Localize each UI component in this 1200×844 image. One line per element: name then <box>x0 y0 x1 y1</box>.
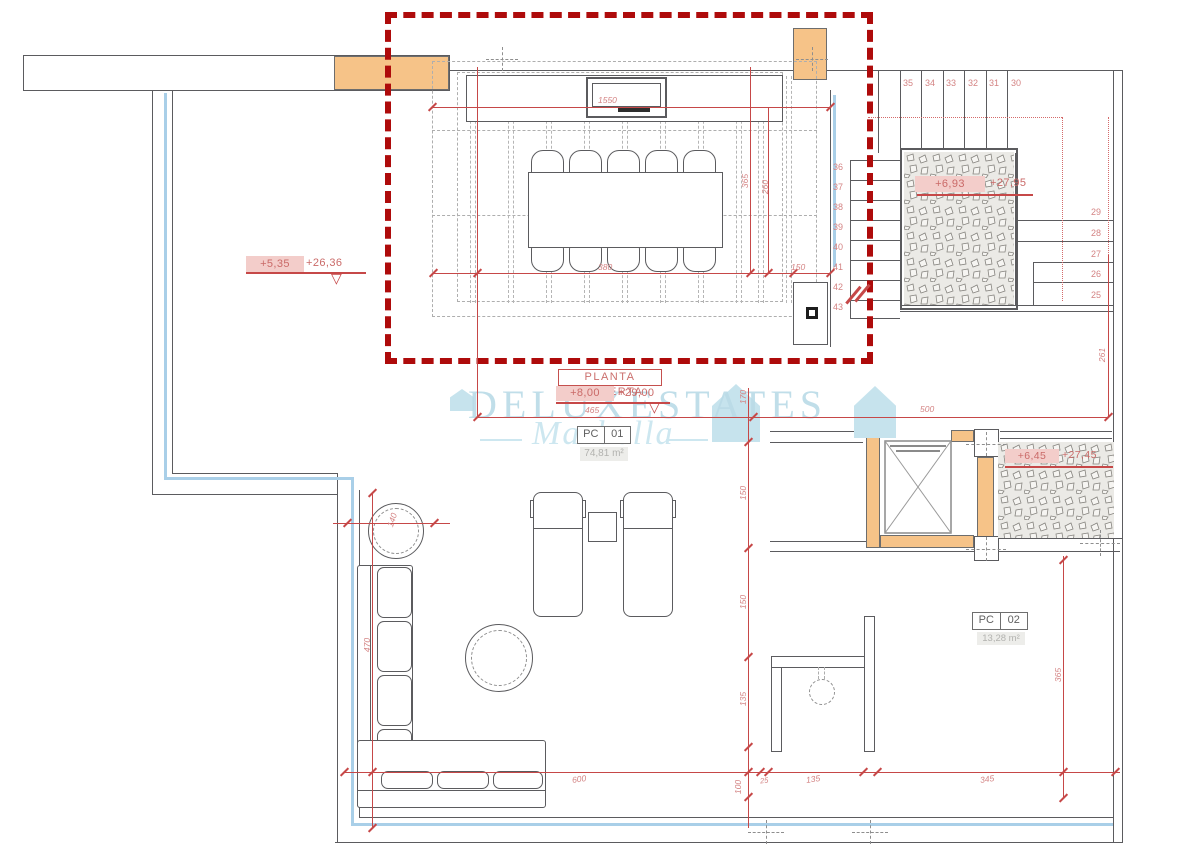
stair-number: 37 <box>830 182 846 192</box>
level-label: +5,35 <box>246 256 304 272</box>
wall-line <box>770 431 863 432</box>
centerline-mark <box>966 537 1006 561</box>
room-number: 02 <box>1000 613 1028 629</box>
wall-line <box>770 442 863 443</box>
centerline-mark <box>966 432 1006 456</box>
sink-circle <box>809 679 835 705</box>
wall-line <box>335 842 1123 843</box>
wall-line <box>900 311 1113 312</box>
wall-line <box>152 494 337 495</box>
lounger-handle <box>530 500 534 518</box>
dim-label: 150 <box>738 486 748 500</box>
counter-wall <box>864 616 875 752</box>
stair-number: 31 <box>984 78 1004 88</box>
wall-line <box>1122 70 1123 843</box>
dim-label: 1550 <box>598 95 617 105</box>
round-table-inner <box>471 630 527 686</box>
dim-label: 150 <box>738 595 748 609</box>
level-marker-icon: ▽ <box>649 401 660 413</box>
dim-line-dotted <box>1108 117 1109 255</box>
dim-label: 365 <box>740 174 750 188</box>
centerline-mark <box>748 820 784 844</box>
watermark-house-icon <box>854 386 896 438</box>
dim-label: 380 <box>598 262 612 272</box>
elevator-cab <box>884 440 952 534</box>
wall-line <box>1015 153 1016 306</box>
sofa-cushion <box>381 771 433 789</box>
stair-number: 25 <box>1086 290 1106 300</box>
stair-tread-line <box>1033 262 1113 263</box>
level-underline <box>246 272 366 274</box>
shaft-wall-orange <box>977 457 994 537</box>
dim-label: 150 <box>791 262 805 272</box>
room-area: 74,81 m² <box>580 447 628 461</box>
plan-title: PLANTA CUBIERTA <box>558 369 662 386</box>
dim-line <box>372 492 373 829</box>
dim-label: 470 <box>362 638 372 652</box>
stair-number: 41 <box>830 262 846 272</box>
level-label: +8,00 <box>556 386 614 401</box>
sink-connector <box>818 667 819 679</box>
wall-line <box>1033 262 1034 306</box>
stair-number: 30 <box>1006 78 1026 88</box>
dim-label: 345 <box>979 773 994 785</box>
room-code: PC <box>578 427 604 443</box>
dim-tick <box>1059 793 1068 802</box>
stair-number: 36 <box>830 162 846 172</box>
dim-line-dotted <box>868 117 1062 118</box>
dim-line <box>432 107 830 108</box>
lounger-handle <box>672 500 676 518</box>
room-code: PC <box>973 613 1000 629</box>
sofa-cushion <box>377 621 412 672</box>
dim-label: 135 <box>738 692 748 706</box>
dim-line <box>433 273 830 274</box>
stair-number: 33 <box>941 78 961 88</box>
stair-number: 29 <box>1086 207 1106 217</box>
sofa-cushion <box>493 771 543 789</box>
centerline-mark <box>1080 530 1120 556</box>
dim-label: 261 <box>1097 348 1107 362</box>
room-tag: PC 02 <box>972 612 1028 630</box>
wall-line <box>152 91 153 495</box>
stair-number: 35 <box>898 78 918 88</box>
stair-number: 32 <box>963 78 983 88</box>
stair-number: 34 <box>920 78 940 88</box>
wall-line <box>900 305 1113 306</box>
room-area: 13,28 m² <box>977 632 1025 645</box>
dim-label: 135 <box>805 773 820 785</box>
sofa-cushion <box>377 567 412 618</box>
dim-label: 500 <box>920 404 934 414</box>
level-label: +6,93 <box>915 176 985 192</box>
demolition-outline <box>385 12 873 364</box>
level-label: +6,45 <box>1005 449 1059 463</box>
dim-label: 25 <box>759 775 769 785</box>
shaft-wall-orange <box>866 431 880 548</box>
wall-line <box>1000 438 1112 439</box>
dim-label: 170 <box>738 390 748 404</box>
dim-line <box>750 67 751 274</box>
side-table <box>588 512 617 542</box>
watermark-dash <box>480 439 522 441</box>
shaft-wall-orange <box>880 535 974 548</box>
dim-label: 100 <box>733 780 743 794</box>
stair-number: 43 <box>830 302 846 312</box>
watermark-dash <box>666 439 708 441</box>
level-underline <box>917 194 1033 196</box>
room-number: 01 <box>604 427 631 443</box>
floor-plan-canvas: DELUXESTATES Marbella 1550 380 <box>0 0 1200 844</box>
stair-number: 28 <box>1086 228 1106 238</box>
dim-line-dotted <box>1062 117 1063 301</box>
counter-wall <box>771 656 782 752</box>
centerline-mark <box>852 820 888 844</box>
sofa-back-line <box>358 790 545 791</box>
lounger-pillow-line <box>624 528 672 529</box>
sofa-cushion <box>377 675 412 726</box>
level-underline <box>1005 466 1113 468</box>
pool-edge-line <box>351 823 1113 826</box>
level-label-alt: +29,00 <box>618 387 654 399</box>
stair-number: 40 <box>830 242 846 252</box>
level-label-alt: +26,36 <box>306 257 342 269</box>
stair-number: 27 <box>1086 249 1106 259</box>
room-tag: PC 01 <box>577 426 631 444</box>
stair-tread-line <box>1015 220 1113 221</box>
lounger-pillow-line <box>534 528 582 529</box>
level-marker-icon: ▽ <box>331 272 342 284</box>
dim-label: 260 <box>760 180 770 194</box>
sun-lounger <box>533 492 583 617</box>
dim-line <box>748 388 749 828</box>
stair-number: 38 <box>830 202 846 212</box>
stair-number: 26 <box>1086 269 1106 279</box>
stair-tread-line <box>1015 241 1113 242</box>
dim-label: 365 <box>1053 668 1063 682</box>
dim-line <box>1063 556 1064 799</box>
stair-number: 42 <box>830 282 846 292</box>
wall-line <box>770 551 1120 552</box>
wall-line <box>337 473 338 843</box>
wall-line <box>172 91 173 473</box>
wall-line <box>359 817 1114 818</box>
level-label-alt: +27,95 <box>990 177 1026 189</box>
stair-number: 39 <box>830 222 846 232</box>
sink-connector <box>824 667 825 679</box>
stair-tread-line <box>878 70 879 153</box>
dim-line <box>344 772 1120 773</box>
dim-line <box>477 417 1108 418</box>
wall-line <box>770 541 868 542</box>
pool-edge-line <box>164 477 352 480</box>
dim-line <box>477 67 478 418</box>
level-label-alt: +27,45 <box>1062 449 1097 461</box>
sofa-cushion <box>437 771 489 789</box>
pool-edge-line <box>164 93 167 477</box>
dim-tick <box>1104 412 1113 421</box>
stair-tread-line <box>1033 282 1113 283</box>
lounger-handle <box>620 500 624 518</box>
dim-label: 600 <box>571 773 586 785</box>
lounger-handle <box>582 500 586 518</box>
wall-line <box>172 473 337 474</box>
dim-label: 465 <box>585 405 599 415</box>
sun-lounger <box>623 492 673 617</box>
dim-line <box>1108 255 1109 418</box>
wall-line <box>1000 431 1112 432</box>
